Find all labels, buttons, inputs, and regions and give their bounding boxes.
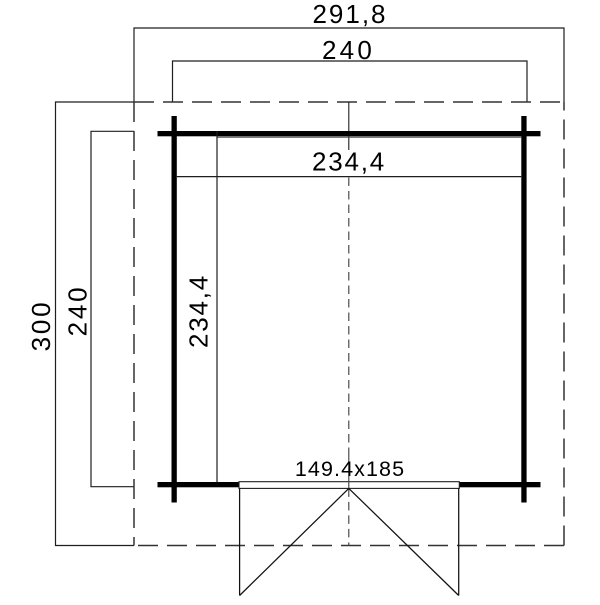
svg-text:234,4: 234,4 — [312, 147, 386, 177]
svg-text:240: 240 — [322, 35, 375, 65]
svg-text:291,8: 291,8 — [312, 0, 387, 29]
svg-text:240: 240 — [63, 285, 93, 337]
svg-text:149.4x185: 149.4x185 — [295, 457, 405, 481]
svg-text:300: 300 — [26, 300, 56, 352]
svg-text:234,4: 234,4 — [184, 274, 214, 348]
